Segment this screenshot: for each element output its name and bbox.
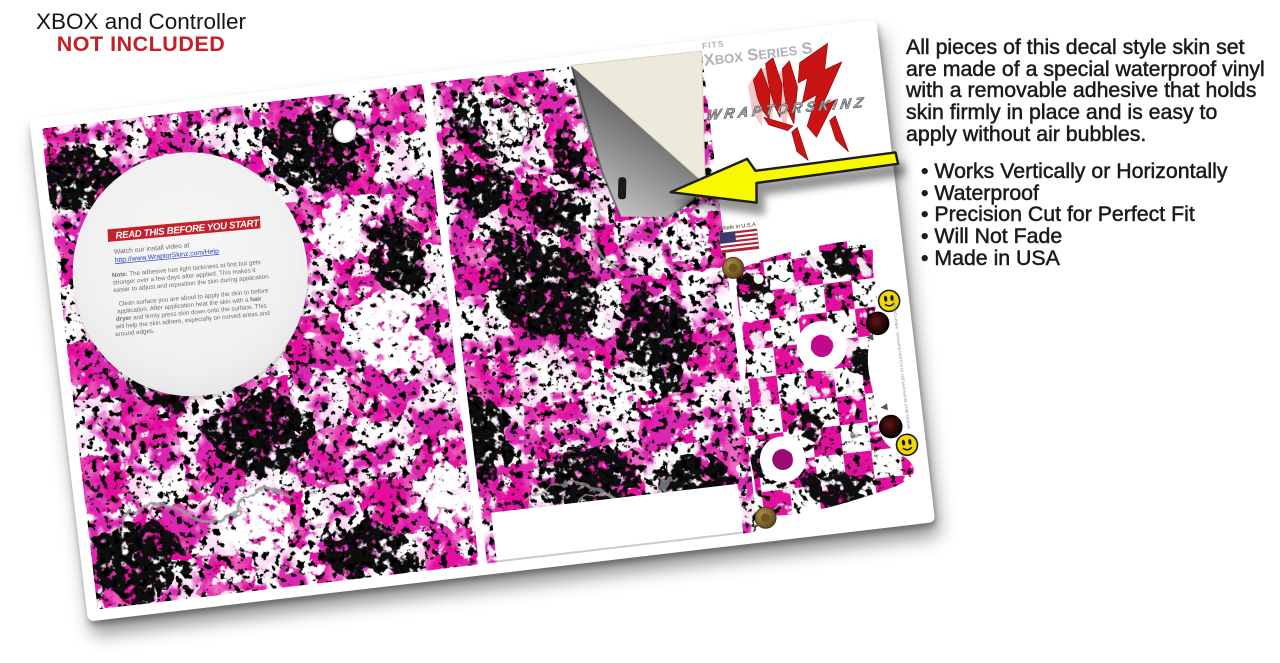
svg-text:WORKS BEST WHEN APPLIED TO A C: WORKS BEST WHEN APPLIED TO A CLEAN SURFA… [892,298,911,429]
svg-text:FITS: FITS [701,38,724,51]
